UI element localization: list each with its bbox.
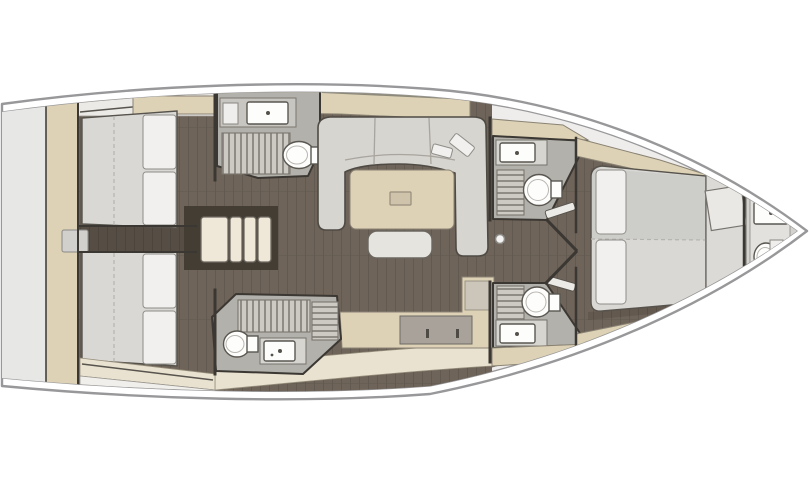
ottoman-bench [368,231,432,258]
forward-head-starboard [492,119,588,220]
cabinet-handle [456,329,459,338]
pillow [596,240,626,304]
mast-post [496,235,505,244]
faucet-dot [278,349,282,353]
floor-plan-canvas [0,0,810,500]
yacht-floor-plan [0,0,810,500]
stair-step [230,217,242,262]
stair-step [244,217,256,262]
galley-sink-inset [465,281,490,310]
shower-grating [497,170,524,215]
toilet-tank [549,294,560,311]
toilet [283,142,315,169]
shower-grating [238,300,310,332]
shower-bench [312,302,338,340]
pillow [143,311,176,364]
shower-grating [497,286,524,324]
stair-step [258,217,271,262]
pillow [596,170,626,234]
pillow [143,254,176,308]
engine-hatch [62,230,88,252]
cabinet-handle [426,329,429,338]
pillow [143,115,176,169]
stern-platform [0,100,46,392]
faucet-dot [266,111,270,115]
galley-cabinet-front [400,316,472,344]
faucet-dot [515,151,519,155]
bow-head [746,186,802,300]
cabinet [223,103,238,124]
faucet-dot [515,332,519,336]
pillow [143,172,176,225]
drain-dot [271,354,274,357]
shower-grating [222,133,290,174]
toilet-tank [551,181,562,198]
toilet-tank [247,336,258,352]
table-leaf-handle [390,192,411,205]
companionway [184,206,278,270]
stair-step [201,217,228,262]
